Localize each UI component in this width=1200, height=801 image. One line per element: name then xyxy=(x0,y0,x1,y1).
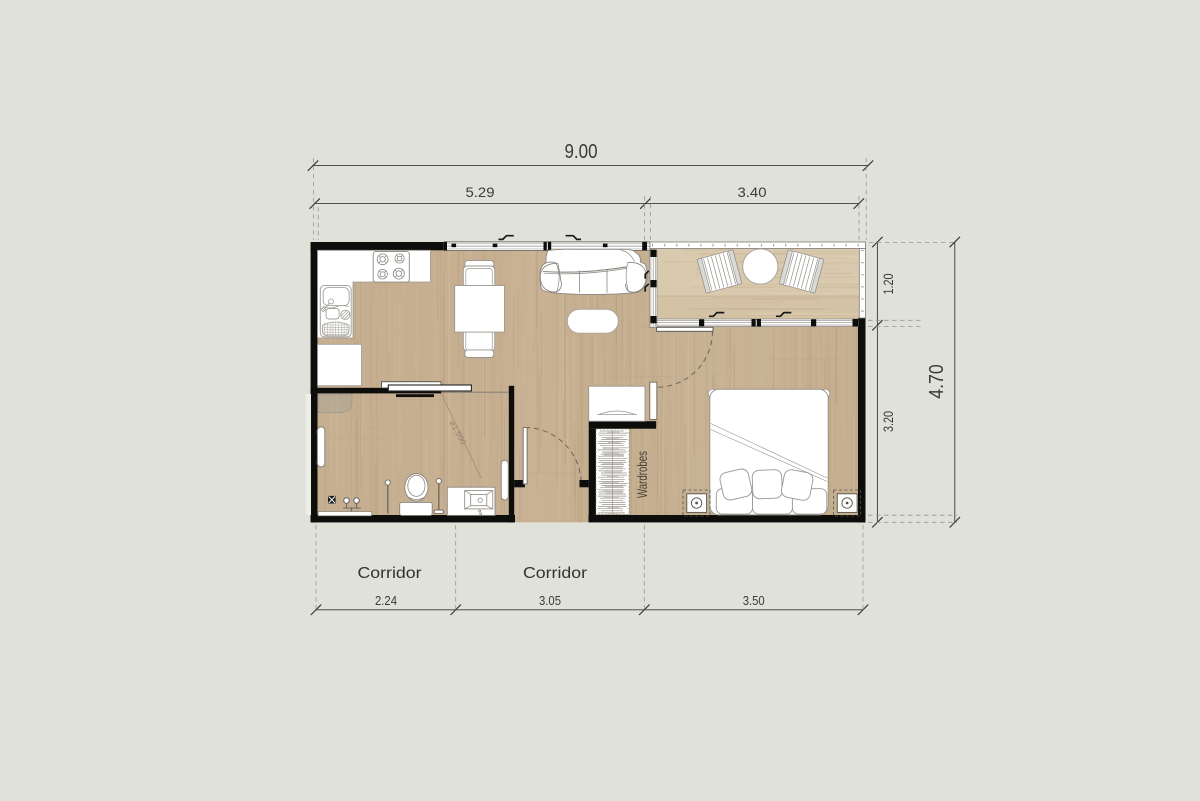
svg-text:Corridor: Corridor xyxy=(358,565,423,582)
svg-text:1.20: 1.20 xyxy=(881,274,896,295)
svg-text:9.00: 9.00 xyxy=(565,141,598,163)
svg-text:2.24: 2.24 xyxy=(375,593,397,608)
svg-text:Corridor: Corridor xyxy=(523,565,588,582)
svg-text:3.50: 3.50 xyxy=(743,593,765,608)
svg-text:Wardrobes: Wardrobes xyxy=(634,451,650,498)
svg-text:3.20: 3.20 xyxy=(881,411,896,432)
svg-text:3.40: 3.40 xyxy=(738,184,767,200)
svg-text:3.05: 3.05 xyxy=(539,593,561,608)
svg-text:5.29: 5.29 xyxy=(466,184,495,200)
svg-text:4.70: 4.70 xyxy=(926,364,948,399)
